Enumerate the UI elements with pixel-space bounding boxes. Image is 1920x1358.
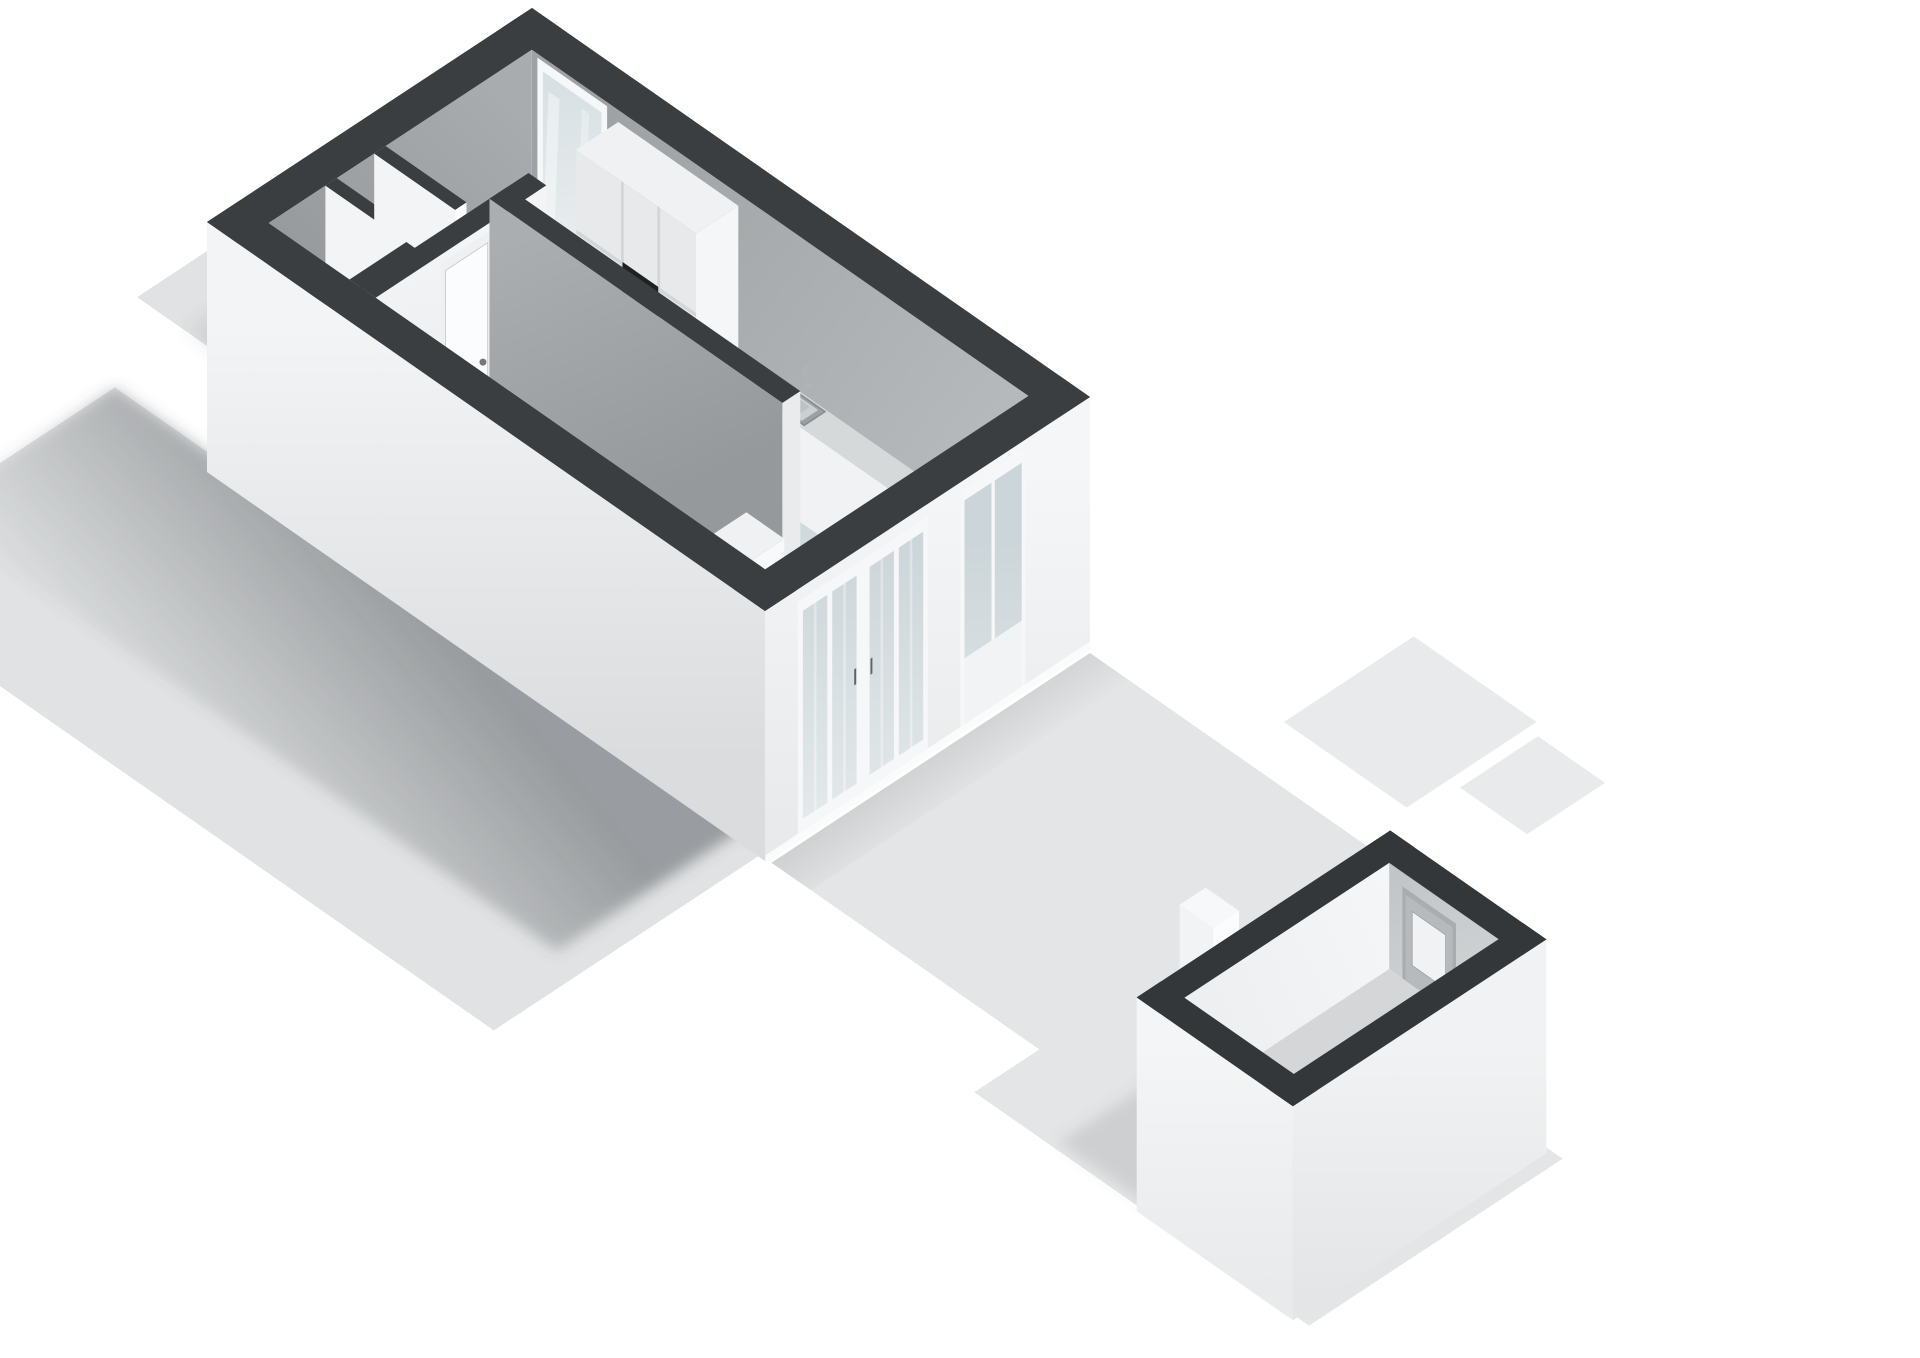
floorplan-render xyxy=(0,0,1920,1358)
side-door-mullion xyxy=(992,481,995,641)
floorplan-canvas xyxy=(0,0,1920,1358)
french-door-pane-reflection-2 xyxy=(843,583,846,793)
french-door-pane-reflection-4 xyxy=(910,539,913,749)
hall-door-handle xyxy=(479,359,486,366)
kitchen-faucet xyxy=(804,382,813,390)
french-door-handle-left xyxy=(854,668,856,685)
french-door-pane-reflection-1 xyxy=(814,602,817,812)
french-door-pane-reflection-3 xyxy=(881,558,884,768)
french-door-handle-right xyxy=(871,657,873,674)
side-glazed-door xyxy=(960,448,1025,727)
